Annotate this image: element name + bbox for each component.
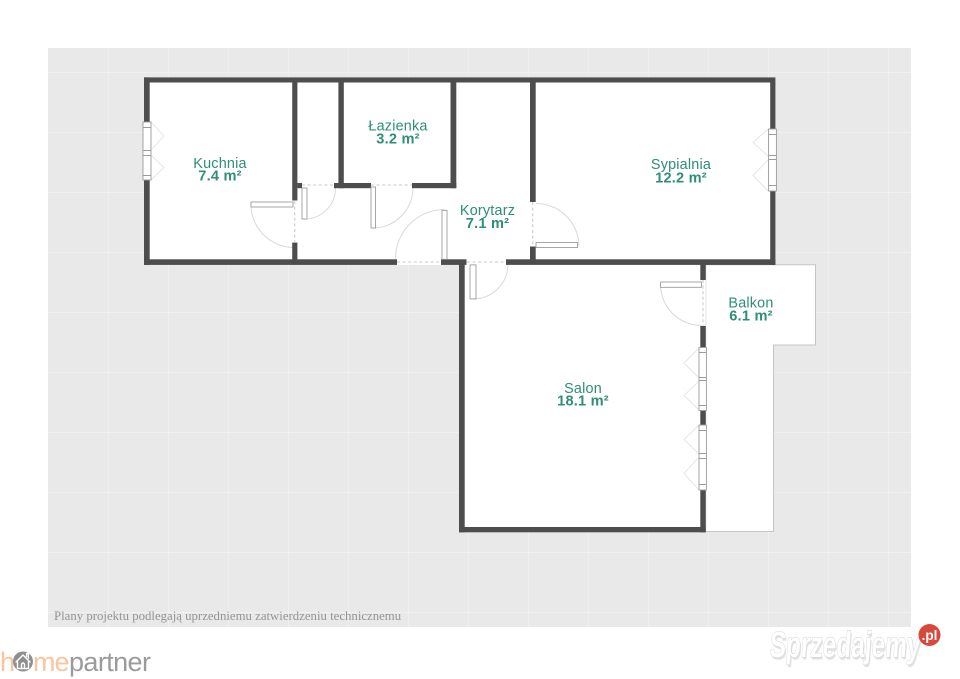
svg-text:18.1 m²: 18.1 m² — [557, 394, 609, 410]
svg-text:3.2 m²: 3.2 m² — [376, 132, 419, 148]
svg-text:me: me — [33, 647, 69, 677]
svg-text:partner: partner — [69, 647, 151, 677]
svg-text:Plany projektu podlegają uprze: Plany projektu podlegają uprzedniemu zat… — [54, 609, 402, 623]
svg-text:12.2 m²: 12.2 m² — [655, 171, 707, 187]
svg-text:.pl: .pl — [922, 628, 938, 643]
svg-text:7.4 m²: 7.4 m² — [198, 169, 241, 185]
svg-text:h: h — [0, 647, 15, 677]
svg-text:6.1 m²: 6.1 m² — [729, 309, 772, 325]
svg-text:Sprzedajemy: Sprzedajemy — [768, 624, 922, 665]
svg-text:7.1 m²: 7.1 m² — [466, 216, 509, 232]
